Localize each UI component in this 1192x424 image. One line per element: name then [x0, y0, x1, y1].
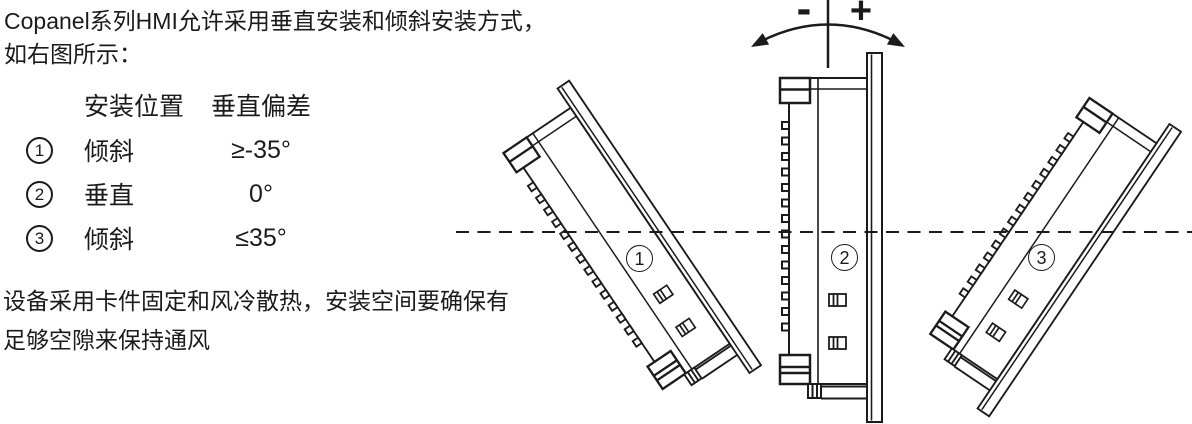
arrow-right-icon [887, 33, 905, 47]
panel-3-label: 3 [1028, 244, 1055, 271]
panel-2-drawing [780, 53, 882, 422]
installation-diagram: - + [0, 0, 1192, 424]
minus-direction-label: - [797, 0, 812, 33]
page: Copanel系列HMI允许采用垂直安装和倾斜安装方式， 如右图所示： 安装位置… [0, 0, 1192, 424]
panel-1-label: 1 [626, 245, 653, 272]
plus-direction-label: + [850, 0, 872, 32]
arrow-left-icon [751, 33, 769, 47]
panel-2-label: 2 [831, 244, 858, 271]
panel-1-drawing [491, 81, 762, 419]
